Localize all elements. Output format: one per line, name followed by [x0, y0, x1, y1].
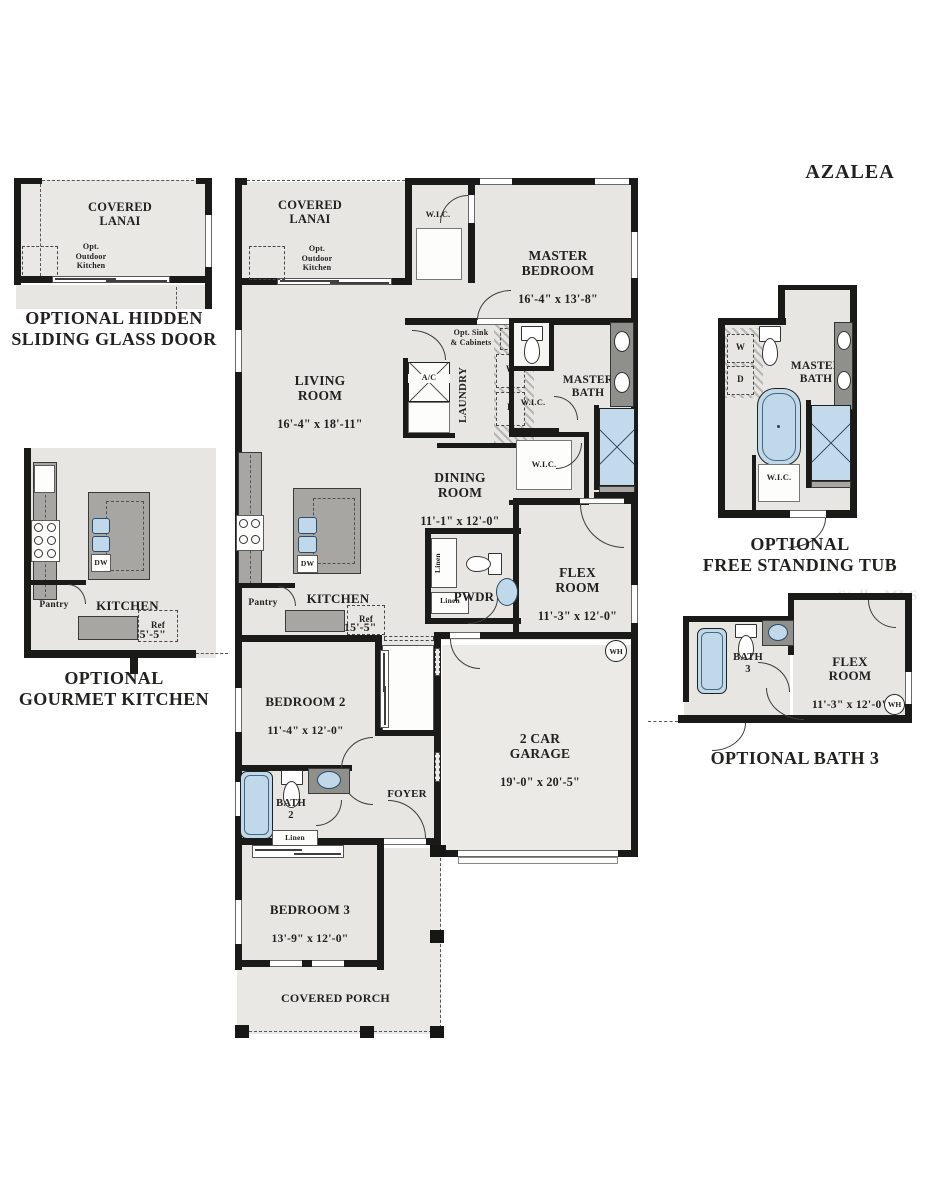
- window: [312, 960, 344, 967]
- dashed-line: [648, 721, 678, 722]
- wall: [237, 960, 384, 967]
- toilet-icon: [466, 552, 502, 576]
- opt-outdoor-kitchen-label: Opt. Outdoor Kitchen: [62, 242, 120, 271]
- wall: [631, 645, 638, 857]
- door-opening: [450, 632, 480, 639]
- wall: [549, 318, 554, 370]
- covered-porch-label: COVERED PORCH: [268, 992, 403, 1005]
- porch-dashed-edge: [239, 1031, 442, 1032]
- lanai-roof-dashed-line: [42, 180, 204, 181]
- bath2-label: BATH 2: [266, 798, 316, 822]
- flex-room-label: FLEX ROOM 11'-3" x 12'-0": [525, 550, 630, 639]
- wall: [24, 650, 196, 658]
- wall: [24, 448, 31, 658]
- cased-opening: [384, 636, 434, 641]
- ref-label: Ref: [347, 614, 385, 624]
- bedroom2-label: BEDROOM 2 11'-4" x 12'-0": [248, 680, 363, 751]
- kitchen-counter: [285, 610, 345, 632]
- inset-caption-bath3: OPTIONAL BATH 3: [690, 748, 900, 769]
- sink-icon: [317, 771, 341, 789]
- wall: [375, 730, 437, 736]
- wall: [405, 178, 412, 285]
- room-dims: 16'-4" x 13'-8": [498, 293, 618, 307]
- bathtub-icon: [697, 628, 727, 694]
- toilet-icon: [520, 326, 544, 364]
- sink-basin-icon: [298, 536, 317, 553]
- garage-label: 2 CAR GARAGE 19'-0" x 20'-5": [475, 716, 605, 805]
- inset-interior-strip: [16, 285, 206, 309]
- room-name: 2 CAR GARAGE: [475, 731, 605, 761]
- shower-icon: [599, 408, 635, 486]
- dw-label: DW: [297, 560, 318, 568]
- wall: [237, 635, 382, 642]
- burner-icon: [47, 523, 56, 532]
- sink-basin-icon: [298, 517, 317, 534]
- cased-opening: [435, 648, 440, 676]
- room-name: KITCHEN: [283, 592, 393, 607]
- window: [631, 232, 638, 278]
- window: [235, 900, 242, 944]
- closet-shelf: [758, 464, 800, 502]
- wall: [425, 528, 521, 534]
- closet: [382, 645, 434, 733]
- front-door-opening: [384, 838, 426, 845]
- inset-caption-gourmet: OPTIONAL GOURMET KITCHEN: [5, 668, 223, 710]
- burner-icon: [239, 535, 248, 544]
- room-name: MASTER BEDROOM: [498, 248, 618, 278]
- ac-shelf: [408, 402, 450, 433]
- floor-plan-page: AZALEA COVERED LANAI Opt. Outdoor Kitche…: [0, 0, 927, 1200]
- foyer-label: FOYER: [378, 788, 436, 800]
- wall: [205, 178, 212, 215]
- wall: [513, 498, 519, 638]
- burner-icon: [47, 536, 56, 545]
- burner-icon: [239, 519, 248, 528]
- window: [205, 215, 212, 267]
- wall: [205, 267, 212, 309]
- toilet-icon: [758, 326, 782, 366]
- sink-icon: [768, 624, 788, 641]
- burner-icon: [34, 523, 43, 532]
- opt-outdoor-kitchen-label: Opt. Outdoor Kitchen: [288, 244, 346, 273]
- ref-label: Ref: [138, 620, 178, 630]
- inset-caption-sliding-door: OPTIONAL HIDDEN SLIDING GLASS DOOR: [5, 308, 223, 350]
- room-name: BEDROOM 2: [248, 695, 363, 710]
- wall: [237, 583, 295, 588]
- wall: [584, 432, 589, 505]
- pantry-label: Pantry: [239, 598, 287, 609]
- dw-label: DW: [91, 559, 111, 567]
- porch-dashed-edge: [440, 853, 441, 1033]
- porch-column: [235, 1025, 249, 1038]
- watermark: StellarMLS: [838, 588, 927, 605]
- porch-column: [430, 930, 444, 943]
- wall-oven: [34, 465, 55, 493]
- wall: [780, 285, 857, 290]
- washer-label: W: [727, 342, 754, 352]
- burner-icon: [251, 519, 260, 528]
- lanai-roof-dashed-line: [247, 180, 405, 181]
- closet-sliding-door: [380, 650, 389, 728]
- wic-label: W.I.C.: [756, 473, 802, 483]
- opt-sink-cabinets-label: Opt. Sink & Cabinets: [440, 328, 502, 347]
- burner-icon: [34, 536, 43, 545]
- living-room-label: LIVING ROOM 16'-4" x 18'-11": [255, 358, 385, 447]
- room-name: DINING ROOM: [405, 470, 515, 500]
- sink-icon: [837, 371, 851, 390]
- island-dashed-outline: [106, 501, 144, 571]
- ac-label: A/C: [408, 374, 450, 383]
- garage-door-opening: [458, 850, 618, 857]
- window: [595, 178, 629, 185]
- door-opening: [790, 510, 826, 518]
- window: [235, 688, 242, 732]
- dryer-label: D: [727, 374, 754, 384]
- wall: [14, 178, 21, 285]
- pantry-label: Pantry: [30, 600, 78, 611]
- linen-label: Linen: [272, 834, 318, 842]
- garage-door-panel: [458, 857, 618, 864]
- plan-title: AZALEA: [790, 161, 910, 183]
- window: [480, 178, 512, 185]
- sliding-glass-door: [277, 278, 392, 285]
- bedroom3-label: BEDROOM 3 13'-9" x 12'-0": [245, 888, 375, 959]
- wall: [683, 616, 689, 702]
- closet-shelf: [416, 228, 462, 280]
- wall: [24, 580, 86, 585]
- porch-column: [430, 1026, 444, 1038]
- water-heater-icon: WH: [605, 640, 627, 662]
- room-dims: 19'-0" x 20'-5": [475, 776, 605, 790]
- wall: [718, 318, 786, 325]
- shower-bench: [811, 481, 851, 488]
- wall: [509, 432, 589, 437]
- kitchen-counter: [78, 616, 138, 640]
- dashed-line: [176, 287, 177, 309]
- wic-small-label: W.I.C.: [510, 398, 556, 408]
- cased-opening: [435, 752, 440, 782]
- porch-column: [360, 1026, 374, 1038]
- opt-outdoor-kitchen-dashed-box: [22, 246, 58, 280]
- inset-bath-floor: [782, 288, 852, 326]
- room-dims: 11'-4" x 12'-0": [248, 724, 363, 737]
- water-heater-icon: WH: [884, 694, 905, 715]
- wall: [377, 838, 384, 970]
- room-dims: 11'-1" x 12'-0": [405, 515, 515, 529]
- covered-lanai-label: COVERED LANAI: [255, 198, 365, 226]
- sink-icon: [614, 372, 630, 393]
- island-dashed-outline: [313, 498, 355, 564]
- door-arc: [712, 723, 746, 751]
- dashed-line: [196, 653, 228, 654]
- burner-icon: [47, 549, 56, 558]
- hidden-sliding-glass-door: [52, 276, 170, 283]
- laundry-label: LAUNDRY: [457, 355, 473, 435]
- window: [235, 330, 242, 372]
- burner-icon: [251, 535, 260, 544]
- closet-sliding-door: [252, 845, 344, 858]
- shower-icon: [811, 405, 851, 481]
- wall: [594, 405, 599, 490]
- wic-top-label: W.I.C.: [406, 210, 470, 220]
- wall: [403, 433, 455, 438]
- sink-basin-icon: [92, 536, 110, 552]
- window: [631, 585, 638, 623]
- porch-column: [430, 845, 446, 857]
- window: [270, 960, 302, 967]
- tub-drain: [777, 425, 780, 428]
- linen-label: Linen: [434, 540, 454, 586]
- room-dims: 16'-4" x 18'-11": [255, 418, 385, 432]
- wall: [718, 510, 857, 518]
- burner-icon: [34, 549, 43, 558]
- wall: [509, 366, 554, 371]
- opt-outdoor-kitchen-dashed-box: [249, 246, 285, 280]
- covered-lanai-label: COVERED LANAI: [70, 200, 170, 228]
- room-name: LIVING ROOM: [255, 373, 385, 403]
- sink-basin-icon: [92, 518, 110, 534]
- room-name: FLEX ROOM: [788, 655, 912, 684]
- sink-icon: [614, 331, 630, 352]
- room-dims: 13'-9" x 12'-0": [245, 932, 375, 945]
- room-name: FLEX ROOM: [525, 565, 630, 595]
- wall: [718, 318, 725, 518]
- master-bedroom-label: MASTER BEDROOM 16'-4" x 13'-8": [498, 233, 618, 322]
- sink-icon: [837, 331, 851, 350]
- room-name: BEDROOM 3: [245, 903, 375, 918]
- room-dims: 11'-3" x 12'-0": [525, 610, 630, 624]
- inset-caption-tub: OPTIONAL FREE STANDING TUB: [700, 534, 900, 576]
